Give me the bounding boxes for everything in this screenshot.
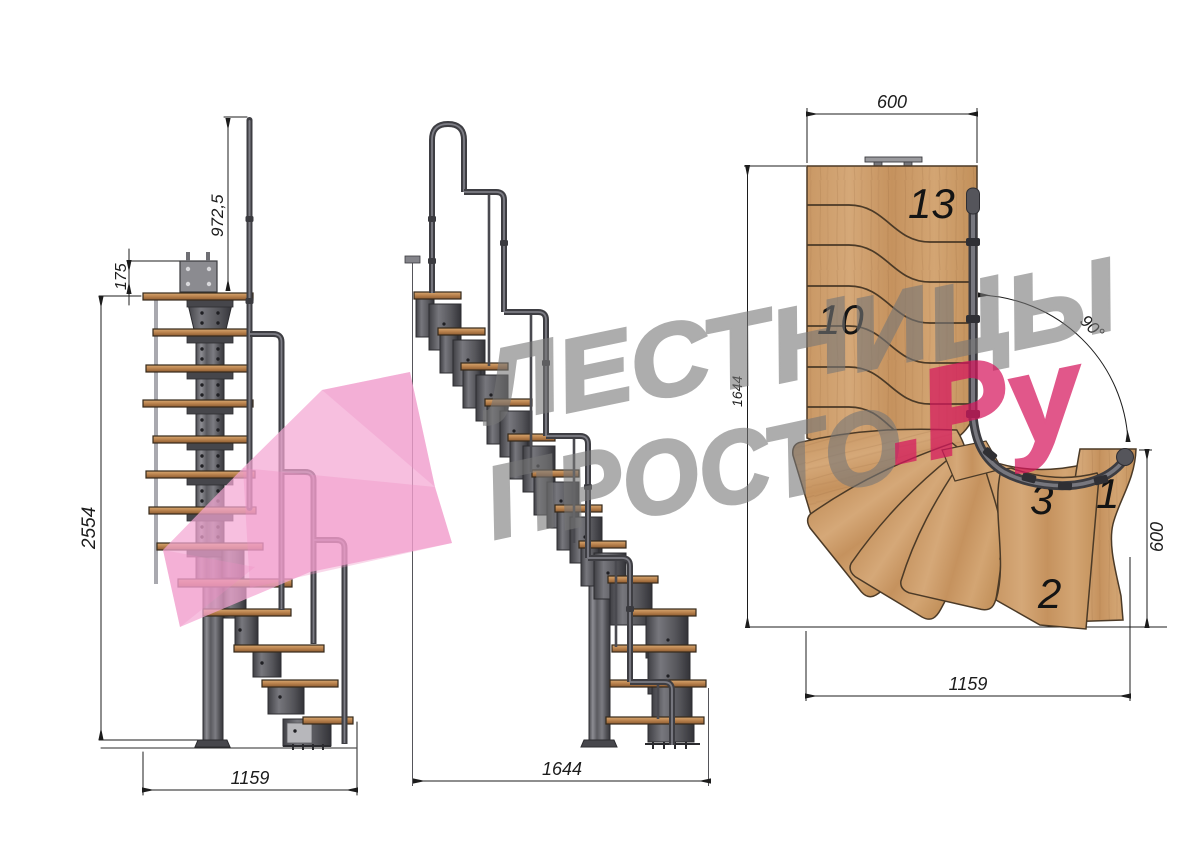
- svg-text:1159: 1159: [231, 768, 270, 788]
- svg-text:1159: 1159: [949, 674, 988, 694]
- svg-text:972,5: 972,5: [208, 194, 227, 237]
- svg-text:13: 13: [908, 180, 955, 227]
- svg-text:1644: 1644: [542, 759, 582, 779]
- svg-text:600: 600: [1147, 522, 1167, 552]
- svg-text:2: 2: [1037, 570, 1061, 617]
- svg-text:2554: 2554: [79, 507, 100, 550]
- svg-text:175: 175: [113, 263, 130, 290]
- svg-text:600: 600: [877, 92, 907, 112]
